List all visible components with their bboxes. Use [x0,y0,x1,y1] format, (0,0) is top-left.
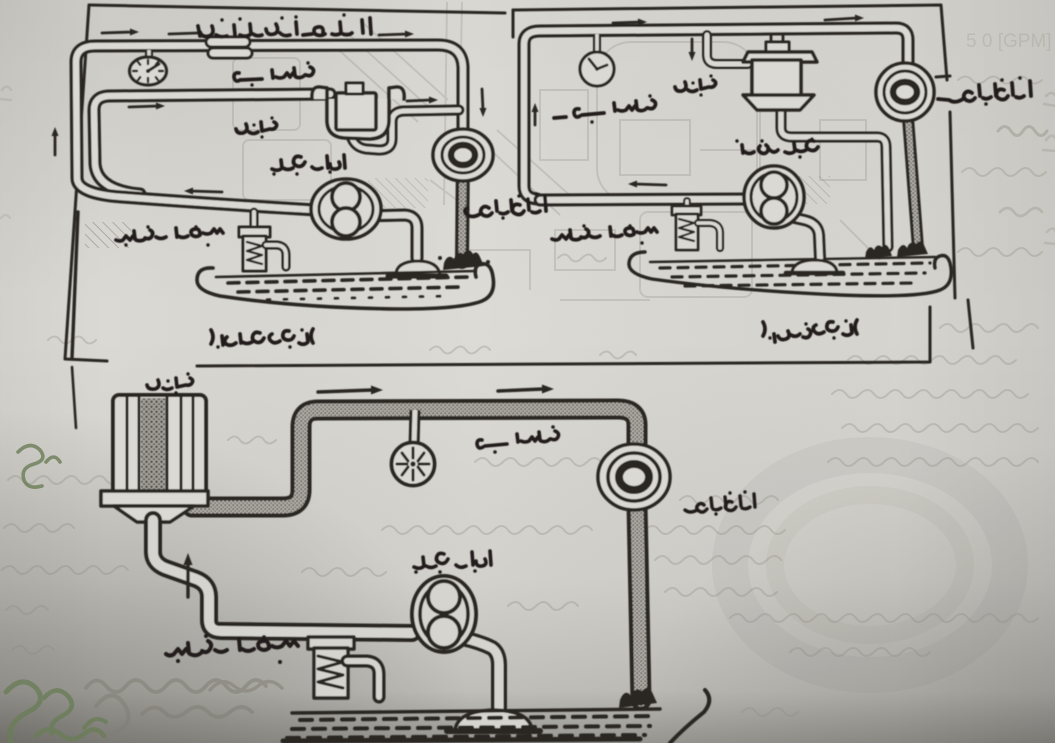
svg-text:5 0 [GPM]: 5 0 [GPM] [966,31,1052,52]
